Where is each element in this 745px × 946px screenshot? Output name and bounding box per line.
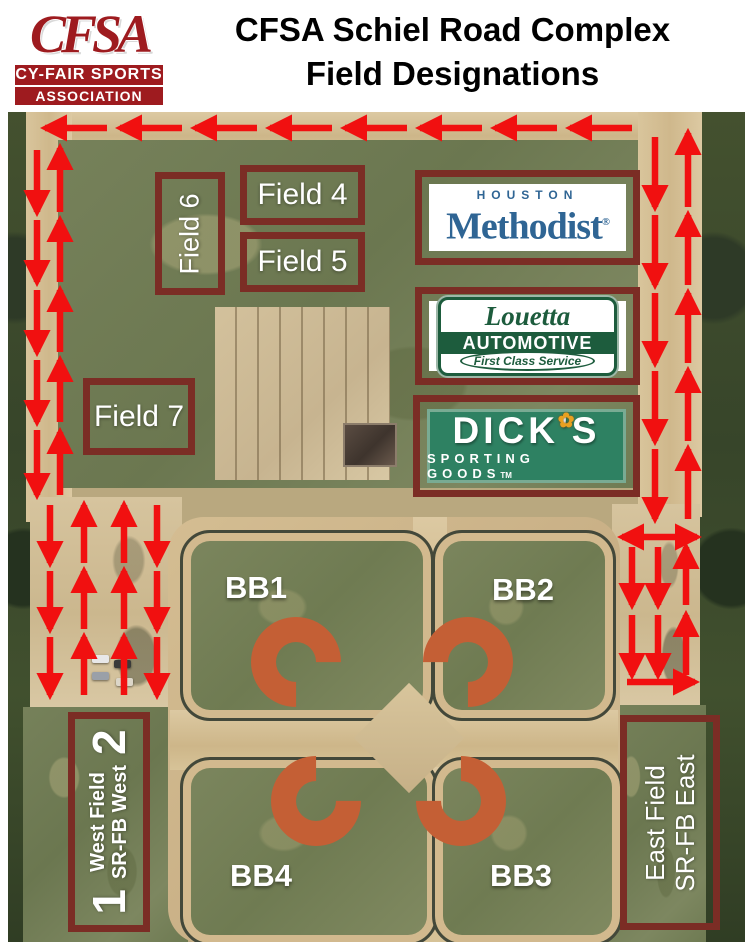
dicks-sporting-goods-text: SPORTING GOODSTM: [427, 451, 626, 481]
poster-page: CFSA CY-FAIR SPORTS ASSOCIATION CFSA Sch…: [0, 0, 745, 946]
cfsa-logo-line2: CY-FAIR SPORTS: [14, 64, 164, 86]
louetta-tagline: First Class Service: [460, 351, 595, 371]
east-field-text: East Field SR-FB East: [640, 754, 700, 891]
cfsa-logo-acronym: CFSA: [14, 4, 164, 64]
methodist-houston-text: HOUSTON: [477, 188, 579, 202]
dicks-wordmark: DICK'S✿: [453, 411, 601, 451]
aerial-building: [345, 425, 395, 465]
east-field-box: East Field SR-FB East: [620, 715, 720, 930]
dicks-sporting-goods-box: DICK'S✿ SPORTING GOODSTM: [413, 395, 640, 497]
field-7-label: Field 7: [90, 385, 188, 448]
cfsa-logo-line3: ASSOCIATION: [14, 86, 164, 106]
houston-methodist-box: HOUSTON Methodist®: [415, 170, 640, 265]
field-7-box: Field 7: [83, 378, 195, 455]
aerial-car: [92, 672, 109, 680]
bb3-label: BB3: [490, 858, 552, 894]
field-6-box: Field 6: [155, 172, 225, 295]
aerial-road-right: [638, 112, 702, 517]
flower-icon: ✿: [558, 401, 579, 441]
west-field-number-1: 1: [82, 879, 136, 925]
cfsa-logo: CFSA CY-FAIR SPORTS ASSOCIATION: [14, 4, 164, 108]
west-field-label: 1 West Field SR-FB West 2: [82, 719, 136, 925]
west-field-box: 1 West Field SR-FB West 2: [68, 712, 150, 932]
dicks-sporting-goods-logo: DICK'S✿ SPORTING GOODSTM: [427, 409, 626, 483]
aerial-car: [116, 678, 133, 686]
houston-methodist-logo: HOUSTON Methodist®: [429, 184, 626, 251]
page-title-line1: CFSA Schiel Road Complex: [175, 8, 730, 52]
bb2-label: BB2: [492, 572, 554, 608]
louetta-automotive-box: Louetta AUTOMOTIVE First Class Service: [415, 287, 640, 385]
aerial-east-parking: [612, 504, 700, 707]
louetta-automotive-logo: Louetta AUTOMOTIVE First Class Service: [429, 301, 626, 371]
field-4-label: Field 4: [247, 172, 358, 218]
trademark-mark: TM: [500, 471, 512, 480]
field-4-box: Field 4: [240, 165, 365, 225]
bb1-label: BB1: [225, 570, 287, 606]
west-field-text: West Field SR-FB West: [87, 765, 131, 879]
west-field-number-2: 2: [82, 719, 136, 765]
aerial-car: [114, 660, 131, 668]
registered-mark: ®: [602, 216, 609, 228]
louetta-frame: Louetta AUTOMOTIVE First Class Service: [438, 297, 617, 376]
methodist-wordmark: Methodist®: [446, 202, 609, 247]
field-6-label: Field 6: [175, 193, 206, 274]
page-title-line2: Field Designations: [175, 52, 730, 96]
aerial-car: [92, 655, 109, 663]
bb4-label: BB4: [230, 858, 292, 894]
louetta-wordmark: Louetta: [485, 300, 571, 332]
page-title: CFSA Schiel Road Complex Field Designati…: [175, 8, 730, 96]
east-field-label: East Field SR-FB East: [640, 754, 700, 891]
field-5-box: Field 5: [240, 232, 365, 292]
field-5-label: Field 5: [247, 239, 358, 285]
